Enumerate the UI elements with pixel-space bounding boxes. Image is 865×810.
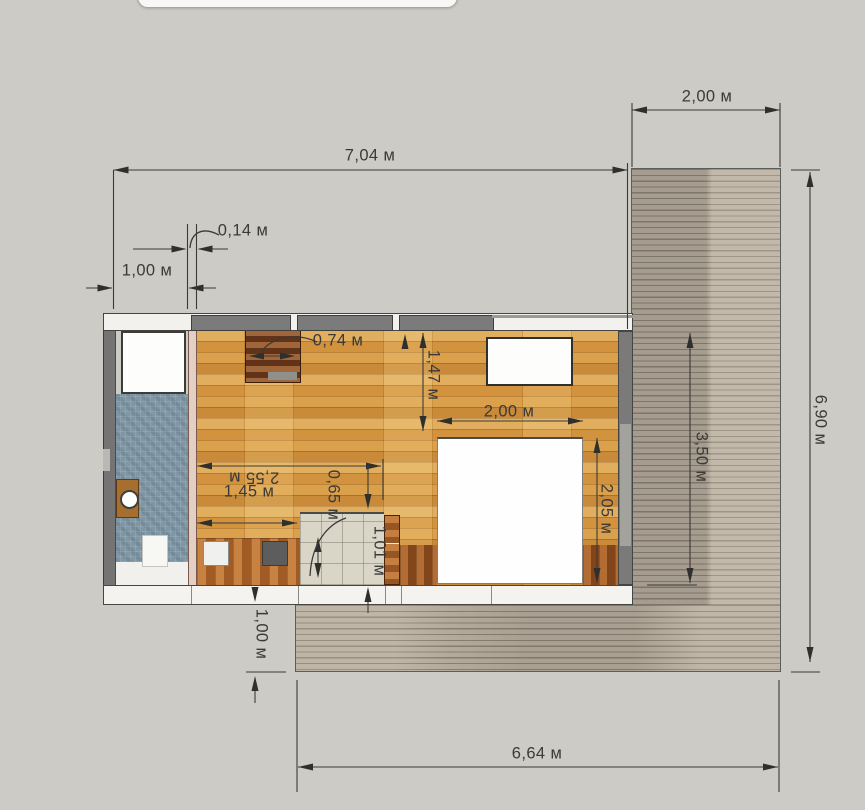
wall-top-segment (399, 315, 494, 331)
dim-label-deck-height: 6,90 м (811, 395, 830, 445)
dim-label-deck-top-width: 2,00 м (682, 88, 732, 107)
wall-top (103, 313, 633, 331)
dim-label-side-offset: 1,00 м (122, 262, 172, 281)
top-overlay-bar (137, 0, 458, 8)
wall-top-window-frame (492, 315, 634, 318)
dim-label-bed-length: 2,05 м (597, 484, 616, 534)
deck-shade (296, 605, 780, 671)
dim-label-total-width: 7,04 м (345, 147, 395, 166)
dimension-side-offset (86, 285, 216, 292)
floor-strip-left (400, 545, 437, 585)
wall-joint (385, 586, 386, 604)
wardrobe-shelf (268, 372, 297, 380)
partition-wall (188, 330, 197, 585)
kitchen-stove (262, 541, 288, 566)
dim-label-counter-width: 1,45 м (224, 483, 274, 502)
wall-joint (401, 586, 402, 604)
kitchen-sink (203, 541, 229, 566)
dim-label-deck-span: 3,50 м (692, 432, 711, 482)
toilet-bowl (120, 490, 139, 509)
dim-label-deck-bottom-width: 6,64 м (512, 745, 562, 764)
wall-left-notch (103, 449, 110, 471)
shower-tray (121, 331, 186, 394)
wall-bottom (103, 585, 633, 605)
dim-label-room-depth: 1,47 м (424, 350, 443, 400)
wall-joint (191, 586, 192, 604)
wardrobe (245, 329, 301, 383)
deck-right-terrace (631, 168, 781, 606)
dim-label-deck-offset: 1,00 м (252, 609, 271, 659)
dim-label-bed-width: 2,00 м (484, 403, 534, 422)
dimension-deck-top-width (632, 103, 780, 167)
wall-right (618, 331, 633, 585)
wall-right-glass (620, 424, 631, 546)
dim-label-wall-thickness: 0,14 м (218, 222, 268, 241)
wall-top-segment (191, 315, 291, 331)
dimension-total-width (114, 163, 628, 329)
desk (486, 337, 573, 386)
toilet-unit (116, 479, 139, 518)
wall-joint (298, 586, 299, 604)
floor-strip-right (583, 545, 618, 585)
dim-label-counter-gap: 0,65 м (324, 470, 343, 520)
deck-bottom-terrace (295, 605, 781, 672)
wall-top-segment (297, 315, 393, 331)
bath-mat (142, 535, 168, 567)
dim-label-entry-depth: 1,01 м (370, 526, 389, 576)
dim-label-wardrobe-width: 0,74 м (313, 332, 363, 351)
wall-joint (491, 586, 492, 604)
deck-shade (632, 169, 780, 606)
dimension-deck-bottom-width (297, 680, 779, 792)
bed (437, 437, 583, 584)
floor-plan: 7,04 м2,00 м1,00 м0,14 м0,74 м1,47 м2,00… (0, 0, 865, 810)
